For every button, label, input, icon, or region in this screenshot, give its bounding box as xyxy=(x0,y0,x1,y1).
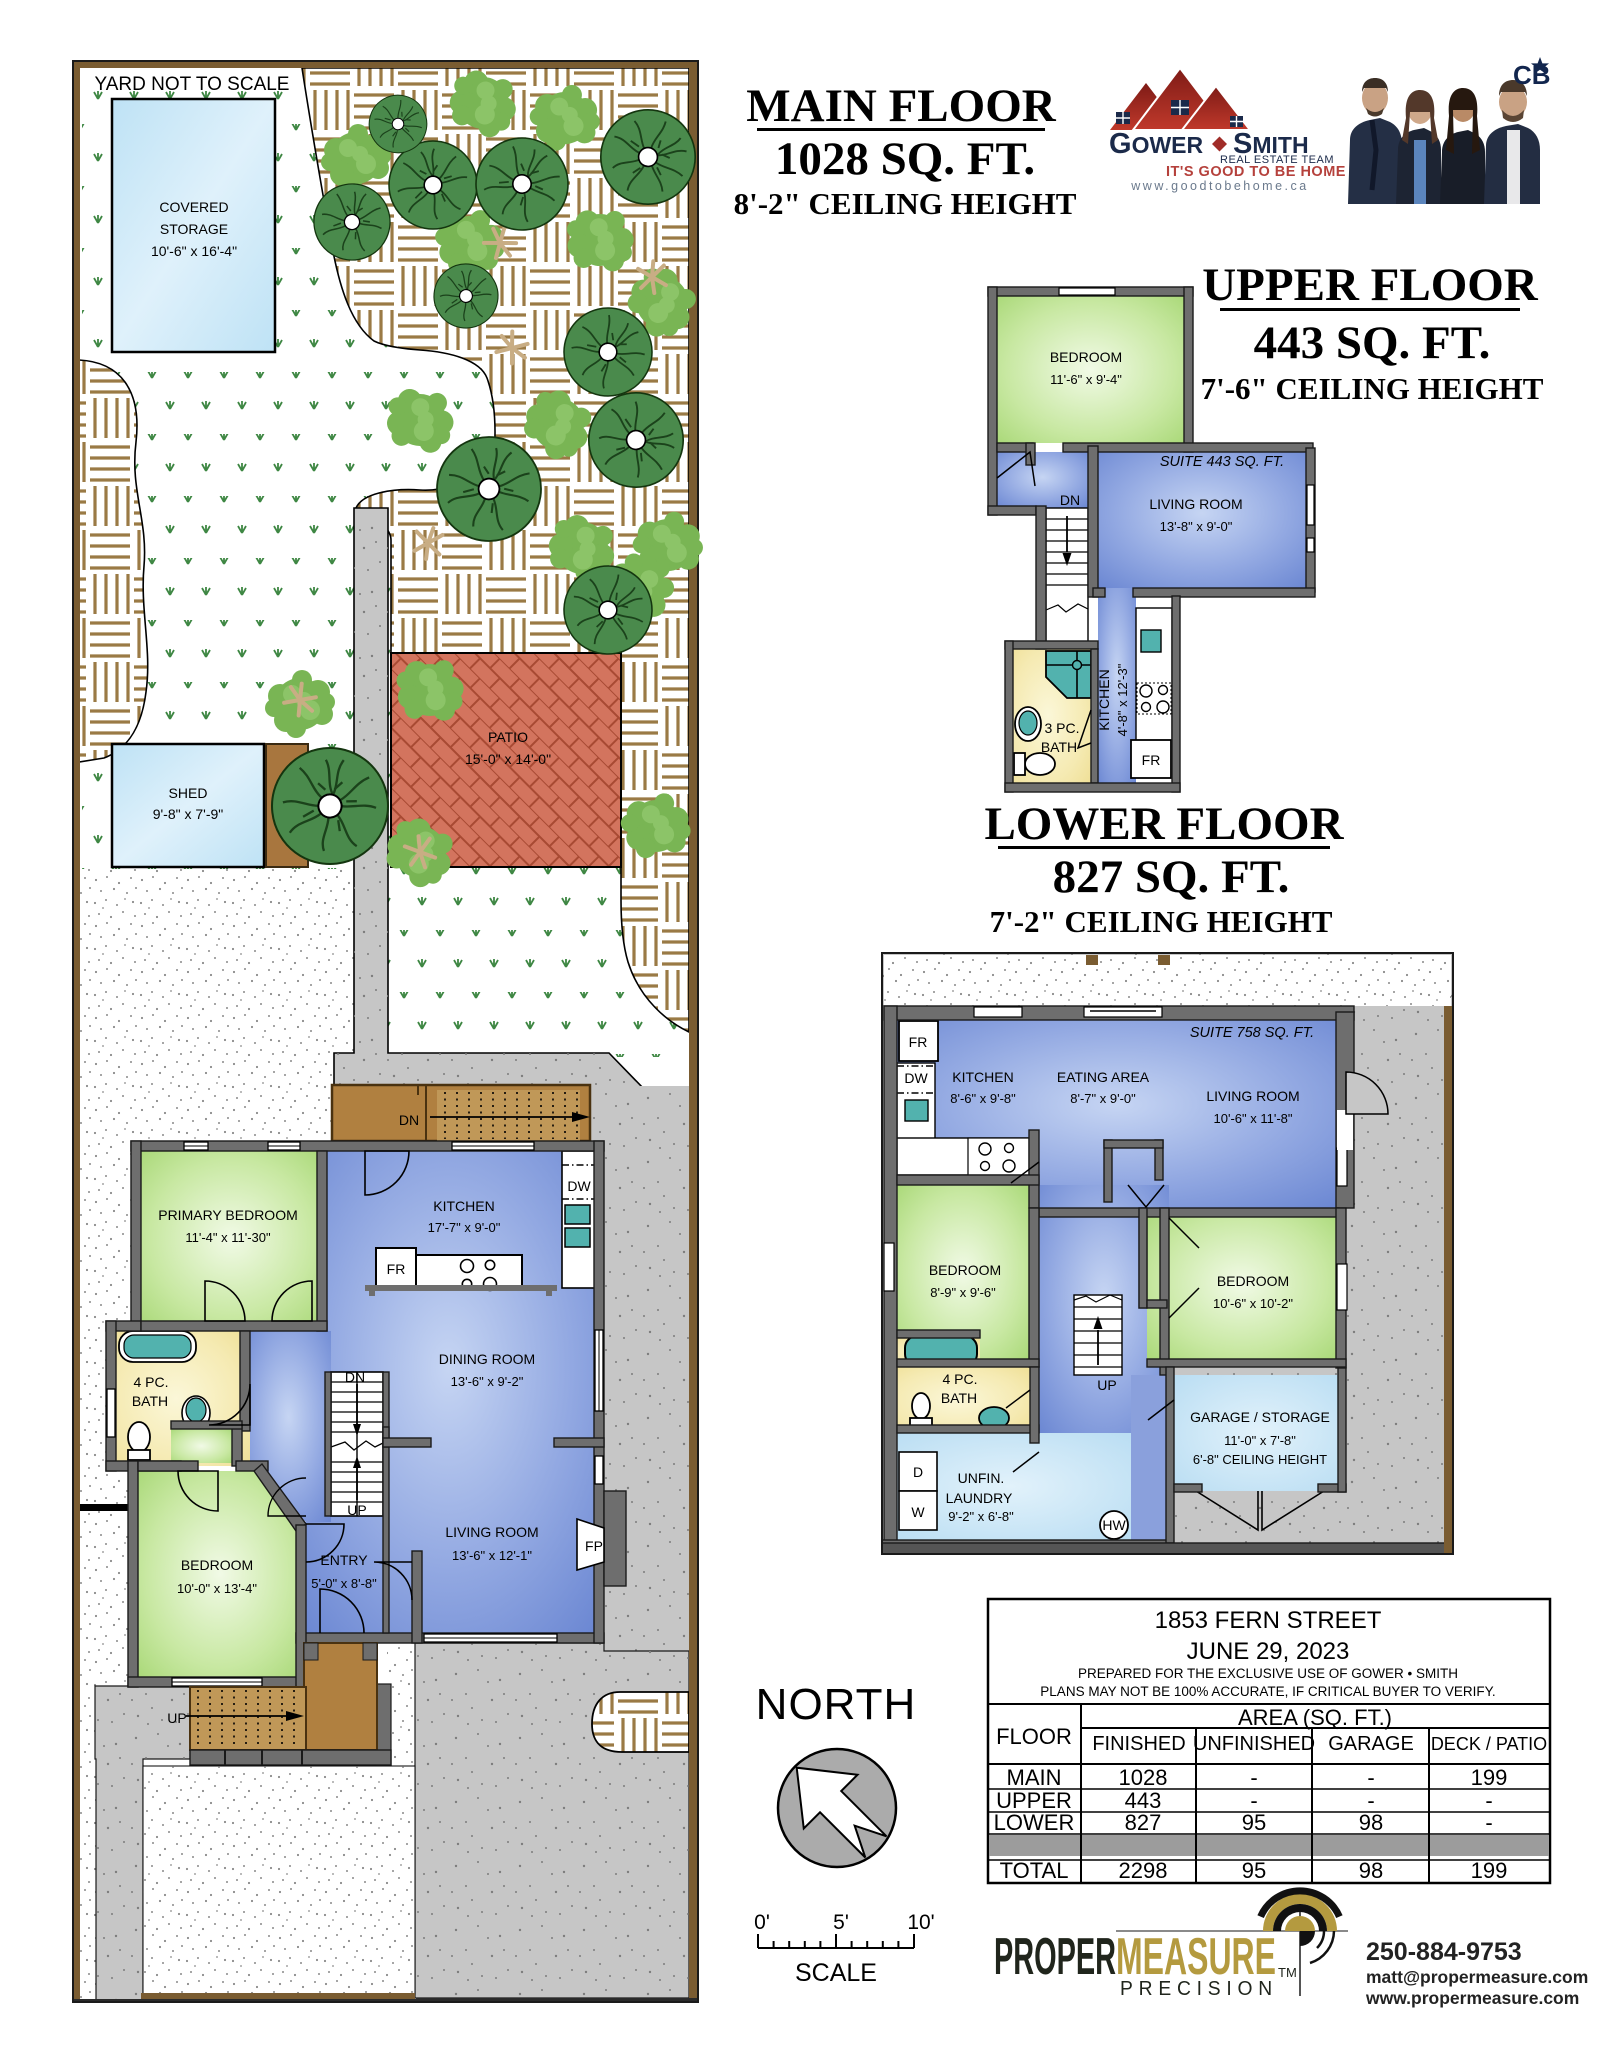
svg-text:98: 98 xyxy=(1359,1810,1383,1835)
svg-text:1028: 1028 xyxy=(1119,1765,1168,1790)
svg-text:IT'S GOOD TO BE HOME: IT'S GOOD TO BE HOME xyxy=(1166,164,1346,180)
svg-text:FINISHED: FINISHED xyxy=(1092,1733,1185,1755)
svg-text:8'-6" x 9'-8": 8'-6" x 9'-8" xyxy=(950,1091,1016,1106)
svg-text:LOWER FLOOR: LOWER FLOOR xyxy=(984,798,1344,850)
svg-text:-: - xyxy=(1367,1765,1374,1790)
svg-text:FR: FR xyxy=(1142,752,1161,768)
svg-text:827 SQ. FT.: 827 SQ. FT. xyxy=(1053,851,1290,903)
svg-text:11'-6" x 9'-4": 11'-6" x 9'-4" xyxy=(1050,372,1122,387)
svg-text:matt@propermeasure.com: matt@propermeasure.com xyxy=(1366,1967,1588,1987)
svg-text:11'-0" x 7'-8": 11'-0" x 7'-8" xyxy=(1224,1433,1296,1448)
svg-text:7'-6" CEILING HEIGHT: 7'-6" CEILING HEIGHT xyxy=(1201,371,1544,406)
svg-text:98: 98 xyxy=(1359,1858,1383,1883)
svg-text:TM: TM xyxy=(1278,1965,1297,1980)
svg-text:FP: FP xyxy=(585,1538,603,1554)
svg-text:BATH: BATH xyxy=(132,1393,168,1409)
svg-text:10'-6" x 11'-8": 10'-6" x 11'-8" xyxy=(1214,1111,1293,1126)
svg-text:PLANS MAY NOT BE 100% ACCURATE: PLANS MAY NOT BE 100% ACCURATE, IF CRITI… xyxy=(1040,1684,1495,1699)
svg-text:www.propermeasure.com: www.propermeasure.com xyxy=(1365,1988,1579,2008)
svg-text:3 PC.: 3 PC. xyxy=(1044,720,1079,736)
svg-text:GARAGE / STORAGE: GARAGE / STORAGE xyxy=(1190,1409,1330,1425)
svg-text:10'-6" x 16'-4": 10'-6" x 16'-4" xyxy=(151,243,237,259)
svg-text:UPPER FLOOR: UPPER FLOOR xyxy=(1202,259,1539,311)
svg-text:4 PC.: 4 PC. xyxy=(133,1374,168,1390)
svg-text:BEDROOM: BEDROOM xyxy=(181,1557,253,1573)
svg-text:5': 5' xyxy=(833,1911,849,1934)
svg-text:95: 95 xyxy=(1242,1858,1266,1883)
svg-text:EATING AREA: EATING AREA xyxy=(1057,1069,1150,1085)
svg-text:SUITE 758 SQ. FT.: SUITE 758 SQ. FT. xyxy=(1190,1025,1314,1041)
svg-text:FLOOR: FLOOR xyxy=(996,1724,1072,1749)
svg-text:2298: 2298 xyxy=(1119,1858,1168,1883)
svg-text:UP: UP xyxy=(1097,1377,1116,1393)
svg-text:MAIN: MAIN xyxy=(1007,1765,1062,1790)
svg-text:MAIN FLOOR: MAIN FLOOR xyxy=(746,80,1056,132)
svg-text:LOWER: LOWER xyxy=(994,1810,1075,1835)
svg-text:827: 827 xyxy=(1125,1810,1162,1835)
svg-text:15'-0" x 14'-0": 15'-0" x 14'-0" xyxy=(465,751,551,767)
svg-text:PRIMARY BEDROOM: PRIMARY BEDROOM xyxy=(158,1207,298,1223)
svg-text:443 SQ. FT.: 443 SQ. FT. xyxy=(1254,317,1491,369)
svg-text:17'-7" x 9'-0": 17'-7" x 9'-0" xyxy=(428,1220,501,1235)
svg-text:LIVING ROOM: LIVING ROOM xyxy=(1149,496,1242,512)
svg-text:YARD NOT TO SCALE: YARD NOT TO SCALE xyxy=(95,74,290,95)
svg-text:DN: DN xyxy=(399,1112,419,1128)
svg-text:DINING ROOM: DINING ROOM xyxy=(439,1351,535,1367)
svg-text:NORTH: NORTH xyxy=(756,1680,917,1729)
svg-text:8'-2" CEILING HEIGHT: 8'-2" CEILING HEIGHT xyxy=(734,186,1077,221)
svg-text:13'-6" x 9'-2": 13'-6" x 9'-2" xyxy=(451,1374,524,1389)
svg-text:7'-2" CEILING HEIGHT: 7'-2" CEILING HEIGHT xyxy=(990,904,1333,939)
svg-text:-: - xyxy=(1485,1810,1492,1835)
svg-text:STORAGE: STORAGE xyxy=(160,221,228,237)
svg-text:UNFIN.: UNFIN. xyxy=(958,1470,1005,1486)
svg-text:11'-4" x 11'-30": 11'-4" x 11'-30" xyxy=(185,1230,271,1245)
svg-text:AREA (SQ. FT.): AREA (SQ. FT.) xyxy=(1238,1705,1392,1730)
svg-text:PRECISION: PRECISION xyxy=(1120,1978,1278,2000)
svg-text:9'-2" x 6'-8": 9'-2" x 6'-8" xyxy=(948,1509,1014,1524)
svg-text:0': 0' xyxy=(754,1911,770,1934)
svg-text:DW: DW xyxy=(567,1178,591,1194)
svg-text:HW: HW xyxy=(1102,1517,1126,1533)
svg-text:LIVING ROOM: LIVING ROOM xyxy=(445,1524,538,1540)
svg-text:1028 SQ. FT.: 1028 SQ. FT. xyxy=(775,133,1035,185)
svg-text:DW: DW xyxy=(904,1070,928,1086)
svg-text:PROPER: PROPER xyxy=(994,1928,1116,1986)
svg-text:SCALE: SCALE xyxy=(795,1959,877,1987)
svg-text:13'-8" x 9'-0": 13'-8" x 9'-0" xyxy=(1160,519,1233,534)
svg-text:FR: FR xyxy=(387,1261,406,1277)
svg-text:9'-8" x 7'-9": 9'-8" x 7'-9" xyxy=(153,806,224,822)
svg-text:BEDROOM: BEDROOM xyxy=(929,1262,1001,1278)
svg-text:UP: UP xyxy=(167,1710,186,1726)
svg-text:UP: UP xyxy=(347,1502,366,1518)
svg-text:PREPARED FOR THE EXCLUSIVE USE: PREPARED FOR THE EXCLUSIVE USE OF GOWER … xyxy=(1078,1666,1458,1681)
svg-text:13'-6" x 12'-1": 13'-6" x 12'-1" xyxy=(452,1548,532,1563)
svg-text:BATH: BATH xyxy=(941,1390,977,1406)
svg-text:10'-6" x 10'-2": 10'-6" x 10'-2" xyxy=(1213,1296,1293,1311)
svg-text:GARAGE: GARAGE xyxy=(1328,1733,1414,1755)
svg-text:UNFINISHED: UNFINISHED xyxy=(1193,1733,1315,1755)
svg-text:199: 199 xyxy=(1471,1858,1508,1883)
svg-text:BEDROOM: BEDROOM xyxy=(1050,349,1122,365)
svg-text:www.goodtobehome.ca: www.goodtobehome.ca xyxy=(1130,179,1308,193)
svg-text:KITCHEN: KITCHEN xyxy=(952,1069,1013,1085)
svg-text:PATIO: PATIO xyxy=(488,729,528,745)
svg-text:FR: FR xyxy=(909,1034,928,1050)
svg-text:95: 95 xyxy=(1242,1810,1266,1835)
svg-text:6'-8" CEILING HEIGHT: 6'-8" CEILING HEIGHT xyxy=(1193,1452,1327,1467)
svg-text:DECK / PATIO: DECK / PATIO xyxy=(1431,1734,1547,1754)
svg-text:LIVING ROOM: LIVING ROOM xyxy=(1206,1088,1299,1104)
svg-text:199: 199 xyxy=(1471,1765,1508,1790)
svg-text:8'-9" x 9'-6": 8'-9" x 9'-6" xyxy=(930,1285,996,1300)
svg-text:SUITE 443 SQ. FT.: SUITE 443 SQ. FT. xyxy=(1160,454,1284,470)
svg-text:D: D xyxy=(913,1464,923,1480)
svg-text:BATH: BATH xyxy=(1041,739,1077,755)
svg-text:KITCHEN: KITCHEN xyxy=(433,1198,494,1214)
svg-text:10': 10' xyxy=(907,1911,934,1934)
svg-text:-: - xyxy=(1250,1765,1257,1790)
svg-text:COVERED: COVERED xyxy=(159,199,228,215)
svg-text:250-884-9753: 250-884-9753 xyxy=(1366,1938,1522,1966)
svg-text:4'-8" x 12'-3": 4'-8" x 12'-3" xyxy=(1115,663,1130,736)
svg-text:10'-0" x 13'-4": 10'-0" x 13'-4" xyxy=(177,1581,257,1596)
svg-text:W: W xyxy=(911,1504,925,1520)
svg-text:1853 FERN STREET: 1853 FERN STREET xyxy=(1155,1607,1382,1634)
svg-text:BEDROOM: BEDROOM xyxy=(1217,1273,1289,1289)
svg-text:DN: DN xyxy=(345,1369,365,1385)
svg-text:8'-7" x 9'-0": 8'-7" x 9'-0" xyxy=(1070,1091,1136,1106)
svg-text:TOTAL: TOTAL xyxy=(1000,1858,1069,1883)
svg-text:LAUNDRY: LAUNDRY xyxy=(946,1490,1013,1506)
svg-text:GOWER: GOWER xyxy=(1109,128,1204,160)
svg-text:SHED: SHED xyxy=(169,785,208,801)
svg-text:JUNE 29, 2023: JUNE 29, 2023 xyxy=(1187,1638,1350,1665)
svg-text:DN: DN xyxy=(1060,492,1080,508)
svg-text:4 PC.: 4 PC. xyxy=(942,1371,977,1387)
